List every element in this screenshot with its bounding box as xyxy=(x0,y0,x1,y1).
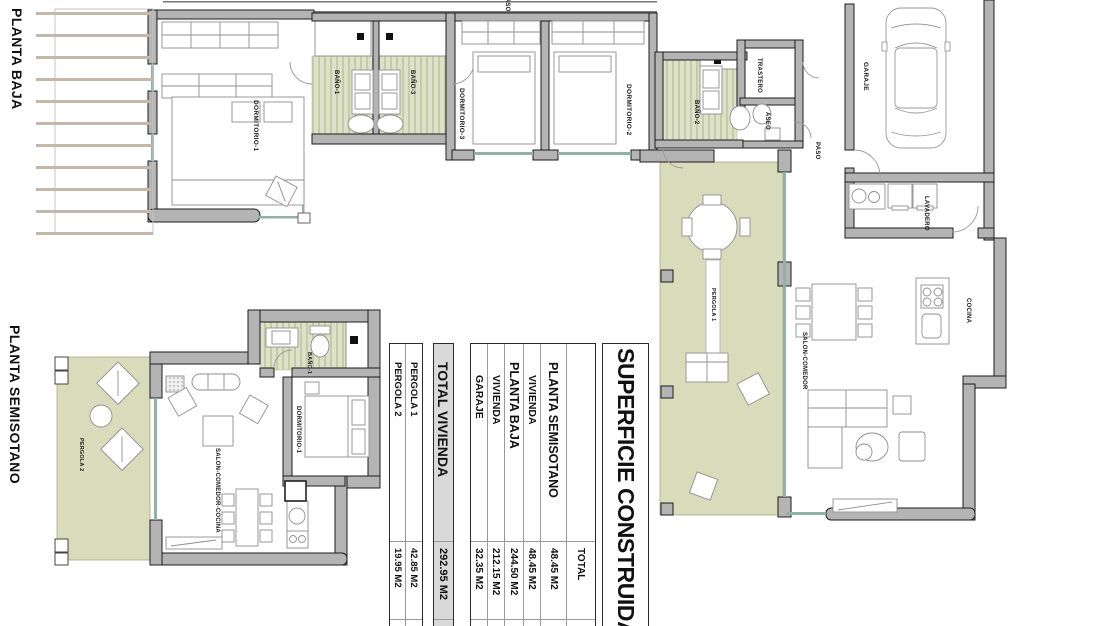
room-label-salon-comedor-cocina: SALON-COMEDOR-COCINA xyxy=(214,448,220,533)
room-label-dormitorio1: DORMITORIO-1 xyxy=(252,100,259,152)
room-label-cocina: COCINA xyxy=(965,298,971,323)
fridge xyxy=(285,481,306,501)
armchair xyxy=(240,395,269,424)
row-computable xyxy=(524,619,540,626)
row-computable: 292 xyxy=(434,619,453,626)
row-label: PLANTA SEMISOTANO xyxy=(541,344,566,541)
outdoor-side-table xyxy=(90,405,112,427)
kitchen-island xyxy=(916,278,949,344)
curved-sofa xyxy=(192,374,240,390)
wardrobe xyxy=(162,22,278,98)
row-total: 292.95 M2 xyxy=(434,541,453,619)
column-header-total: TOTAL xyxy=(567,541,595,619)
toilet xyxy=(730,106,750,130)
room-label-bano3: BAÑO-3 xyxy=(409,70,415,95)
row-label: PERGOLA 2 xyxy=(390,344,405,541)
row-total: 32.35 M2 xyxy=(471,541,487,619)
surface-table: SUPERFICIE CONSTRUIDA TOTAL COM PLANTA S… xyxy=(389,343,649,626)
surface-table-main: TOTAL COM PLANTA SEMISOTANO 48.45 M2 48 … xyxy=(470,343,596,626)
row-label: GARAJE xyxy=(471,344,487,541)
room-label-bano2: BAÑO-2 xyxy=(693,100,699,125)
room-label-dormitorio2: DORMITORIO-2 xyxy=(625,84,632,136)
surface-table-total: TOTAL VIVIENDA 292.95 M2 292 xyxy=(433,343,454,626)
washing-machines xyxy=(888,184,937,210)
bed xyxy=(305,396,369,457)
table-row: PERGOLA 2 19.95 M2 xyxy=(390,344,406,626)
car xyxy=(882,8,950,148)
room-label-lavadero: LAVADERO xyxy=(923,196,929,231)
room-label-paso: PASO xyxy=(814,142,820,160)
armchair xyxy=(899,432,925,461)
row-total: 212.15 M2 xyxy=(488,541,504,619)
table-header-row: TOTAL COM xyxy=(567,344,595,626)
table-row: PERGOLA 1 42.85 M2 xyxy=(406,344,422,626)
row-total: 42.85 M2 xyxy=(406,541,422,619)
dining-table xyxy=(796,284,872,340)
room-label-trastero: TRASTERO xyxy=(756,58,762,93)
row-label: TOTAL VIVIENDA xyxy=(434,344,453,541)
table-row: VIVIENDA 48.45 M2 xyxy=(524,344,541,626)
coffee-table xyxy=(203,416,233,446)
room-label-pergola2: PERGOLA 2 xyxy=(78,438,84,471)
floor-title-planta-baja: PLANTA BAJA xyxy=(9,8,25,110)
outdoor-sofa xyxy=(686,353,728,382)
column-header-computable: COM xyxy=(567,619,595,626)
room-label-dormitorio1-semi: DORMITORIO-1 xyxy=(295,406,301,453)
row-computable: 3 xyxy=(471,619,487,626)
room-label-bano1: BAÑO-1 xyxy=(333,70,339,95)
room-label-garaje: GARAJE xyxy=(862,62,869,91)
room-label-dormitorio3: DORMITORIO-3 xyxy=(458,88,465,140)
floor-title-planta-semisotano: PLANTA SEMISOTANO xyxy=(7,325,23,484)
table-row: GARAJE 32.35 M2 3 xyxy=(471,344,488,626)
window-corner-post xyxy=(298,213,310,223)
dining-table xyxy=(222,489,272,546)
table-row: VIVIENDA 212.15 M2 21 xyxy=(488,344,505,626)
row-label: PERGOLA 1 xyxy=(406,344,422,541)
doormat xyxy=(166,376,184,392)
row-computable: 21 xyxy=(488,619,504,626)
side-table xyxy=(893,396,911,414)
room-label-bano1-semi: BAÑO-1 xyxy=(306,352,312,374)
row-label: VIVIENDA xyxy=(524,344,540,541)
pergola-slats xyxy=(36,12,153,237)
row-label: PLANTA BAJA xyxy=(505,344,523,541)
row-computable xyxy=(406,619,422,626)
total-row: TOTAL VIVIENDA 292.95 M2 292 xyxy=(434,344,453,626)
surface-table-title: SUPERFICIE CONSTRUIDA xyxy=(602,343,649,626)
room-label-salon-comedor: SALON-COMEDOR xyxy=(801,332,807,390)
surface-table-pergolas: PERGOLA 1 42.85 M2 PERGOLA 2 19.95 M2 xyxy=(389,343,423,626)
table-row: PLANTA BAJA 244.50 M2 24 xyxy=(505,344,524,626)
row-total: 48.45 M2 xyxy=(541,541,566,619)
row-total: 48.45 M2 xyxy=(524,541,540,619)
room-label-aseo: ASEO xyxy=(764,112,770,130)
vanity xyxy=(266,328,298,347)
table-row: PLANTA SEMISOTANO 48.45 M2 48 xyxy=(541,344,567,626)
vanity xyxy=(700,66,722,114)
room-label-paso-top: PASO xyxy=(504,0,510,12)
floor-plan-page: PLANTA BAJA PLANTA SEMISOTANO DORMITORIO… xyxy=(0,0,1110,626)
tv-bench xyxy=(166,537,222,549)
row-computable: 24 xyxy=(505,619,523,626)
row-total: 244.50 M2 xyxy=(505,541,523,619)
row-label: VIVIENDA xyxy=(488,344,504,541)
row-computable: 48 xyxy=(541,619,566,626)
kitchen-counter xyxy=(287,501,308,548)
wardrobe xyxy=(462,21,644,44)
tv-bench xyxy=(833,499,897,512)
nightstand xyxy=(305,382,319,394)
room-label-pergola1: PERGOLA 1 xyxy=(710,288,716,321)
pouf xyxy=(856,433,888,461)
row-computable xyxy=(390,619,405,626)
toilet xyxy=(310,326,330,357)
laundry-sink xyxy=(849,184,885,209)
row-total: 19.95 M2 xyxy=(390,541,405,619)
